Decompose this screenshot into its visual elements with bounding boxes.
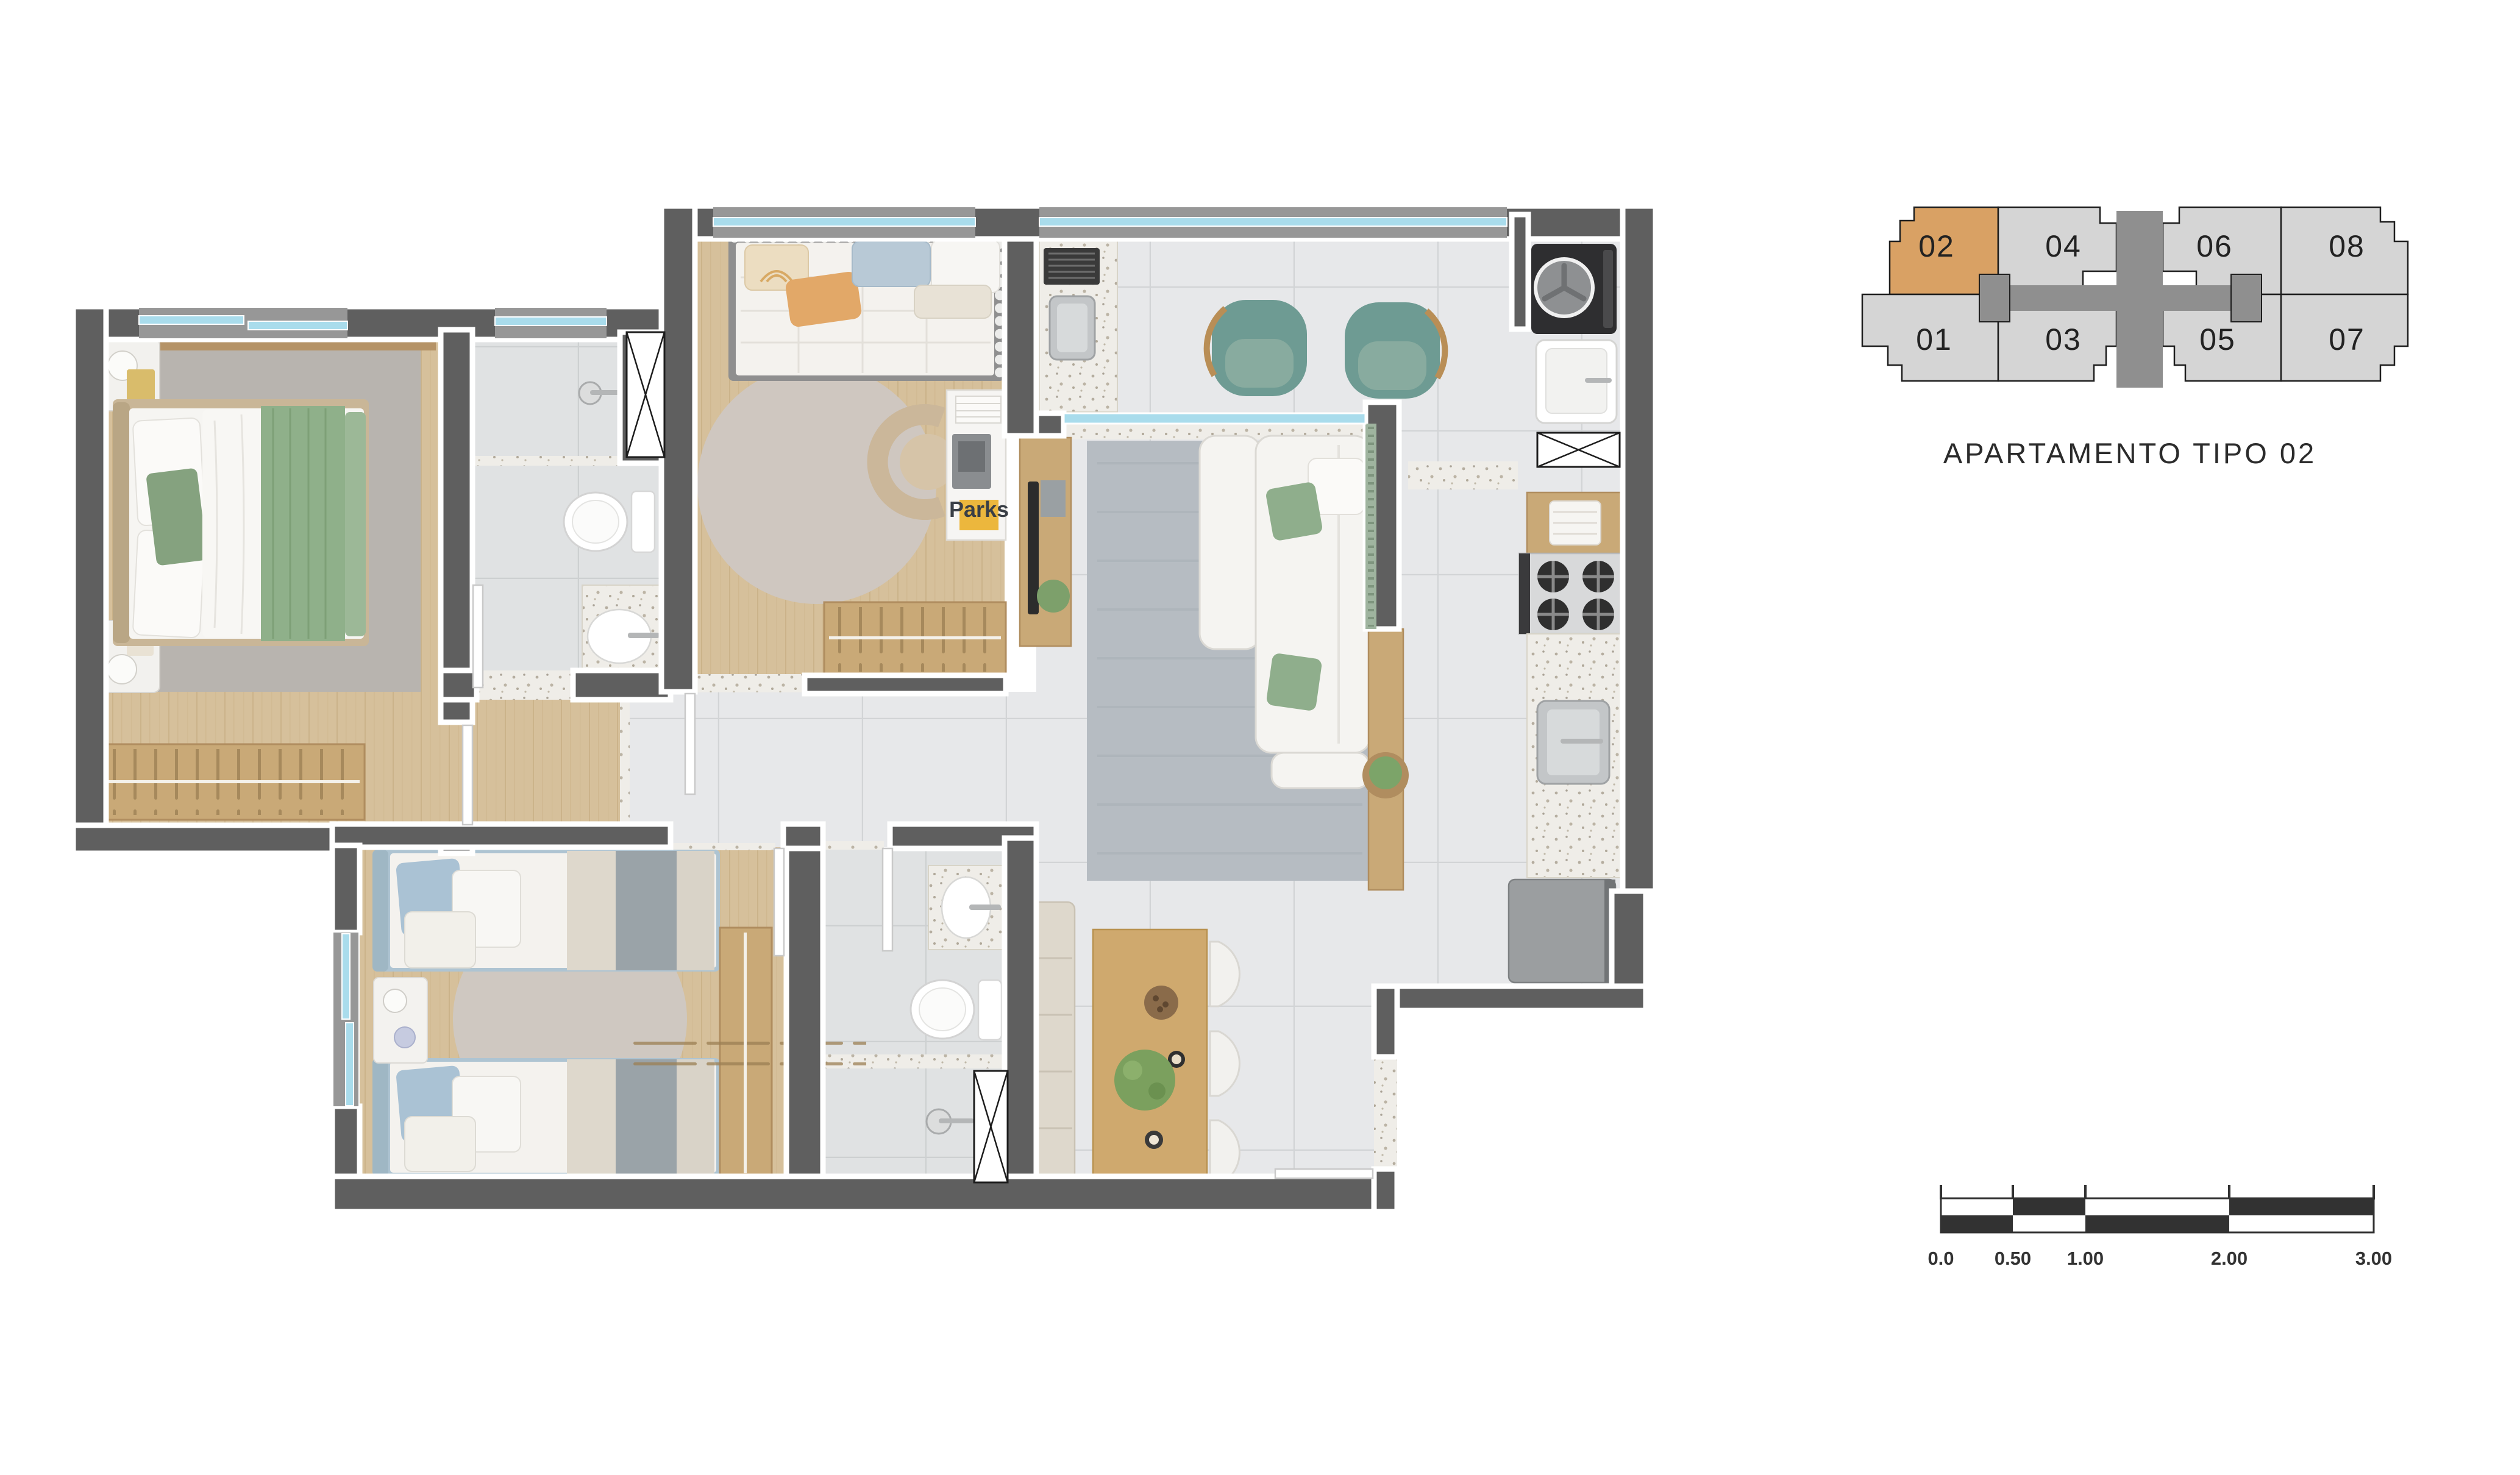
blanket-band bbox=[616, 1059, 677, 1175]
wall-bath2-right bbox=[1005, 838, 1036, 1176]
wall-master-bottom bbox=[73, 825, 336, 853]
basin-faucet bbox=[969, 905, 1001, 910]
pillow bbox=[405, 1117, 475, 1171]
wall-left bbox=[73, 307, 106, 853]
bathroom2-threshold bbox=[823, 841, 884, 850]
plant-icon bbox=[1369, 756, 1402, 789]
bathroom1-window-glass bbox=[495, 317, 607, 325]
plant-centerpiece bbox=[1114, 1050, 1175, 1111]
bedroom3-threshold bbox=[671, 843, 775, 850]
wall-bedroom3-top bbox=[332, 824, 671, 847]
bedroom3-door-leaf bbox=[774, 848, 784, 956]
laundry-area bbox=[1531, 244, 1617, 423]
duct-shaft bbox=[974, 1071, 1008, 1182]
wall-bedroom3-bath2-divider bbox=[786, 848, 823, 1176]
twin-bed-headboard bbox=[372, 1058, 388, 1176]
plant-icon bbox=[1037, 580, 1070, 613]
sofa-chaise bbox=[1200, 436, 1261, 649]
wall-master-bath-divider bbox=[441, 330, 472, 722]
orange-pillow bbox=[785, 271, 863, 328]
book-stack bbox=[956, 396, 1001, 423]
page-title: APARTAMENTO TIPO 02 bbox=[1943, 437, 2316, 469]
bathroom1-door-leaf bbox=[473, 585, 483, 688]
sink-faucet bbox=[1561, 739, 1603, 744]
scale-label-300: 3.00 bbox=[2355, 1248, 2392, 1269]
clock-icon bbox=[394, 1027, 415, 1048]
wardrobe-rail bbox=[107, 780, 360, 783]
scale-ticks bbox=[1941, 1185, 2374, 1200]
keyplan-unit-02-label: 02 bbox=[1918, 229, 1955, 263]
dining-chairs bbox=[1210, 942, 1239, 1185]
wall-glass-jamb bbox=[1036, 413, 1064, 436]
scale-bar: 0.0 0.50 1.00 2.00 3.00 bbox=[1927, 1185, 2392, 1269]
wall-door-stub bbox=[783, 824, 823, 848]
scale-checker bbox=[1941, 1198, 2374, 1232]
cloud-pillow bbox=[852, 241, 930, 286]
twin-bed bbox=[372, 1058, 720, 1176]
bedroom2-threshold bbox=[695, 674, 805, 692]
toilet-seat bbox=[572, 500, 619, 543]
keyplan-unit-05-label: 05 bbox=[2199, 322, 2236, 357]
media-box bbox=[1041, 480, 1066, 517]
twin-bed bbox=[372, 850, 720, 972]
keyplan-unit-06-label: 06 bbox=[2196, 229, 2233, 263]
scale-label-050: 0.50 bbox=[1995, 1248, 2031, 1269]
laptop-keys bbox=[958, 441, 985, 472]
wall-bedroom3-left-lower bbox=[332, 1106, 360, 1182]
scale-label-0: 0.0 bbox=[1927, 1248, 1954, 1269]
wall-bottom bbox=[332, 1176, 1397, 1212]
wall-bedroom2-left bbox=[661, 206, 695, 692]
pillow bbox=[405, 912, 475, 968]
scale-label-100: 1.00 bbox=[2067, 1248, 2104, 1269]
bathroom2-door-leaf bbox=[883, 848, 892, 951]
master-window-glass bbox=[248, 321, 347, 330]
wall-kitchen-bottom bbox=[1376, 986, 1646, 1011]
teal-armchair bbox=[1207, 300, 1307, 396]
sofa-foot-cushion bbox=[1272, 753, 1369, 788]
cooktop-front bbox=[1519, 553, 1530, 634]
blanket-band bbox=[677, 1059, 714, 1175]
wall-bedroom2-bottom bbox=[805, 675, 1006, 694]
scale-label-200: 2.00 bbox=[2211, 1248, 2248, 1269]
bedroom2-window-glass bbox=[713, 218, 975, 226]
twin-bed-headboard bbox=[372, 850, 388, 972]
green-pillow bbox=[1265, 653, 1322, 712]
wardrobe-rail bbox=[744, 933, 747, 1173]
double-bed-headboard bbox=[113, 402, 130, 643]
armchair-cushion bbox=[1225, 339, 1294, 388]
desk-brand-label: Parks bbox=[949, 497, 1009, 522]
entry-door-leaf bbox=[1275, 1169, 1373, 1178]
green-pillow bbox=[1265, 482, 1323, 542]
wall-bedroom2-right bbox=[1005, 239, 1036, 436]
wall-entry-corner bbox=[1374, 1169, 1397, 1212]
duct-shaft bbox=[1537, 433, 1620, 467]
wall-entry-stub bbox=[1374, 986, 1397, 1057]
wall-right-upper bbox=[1623, 206, 1656, 891]
keyplan-corridor bbox=[1979, 285, 2257, 311]
keyplan-unit-08-label: 08 bbox=[2329, 229, 2365, 263]
master-window-glass bbox=[139, 316, 244, 324]
round-rug bbox=[697, 365, 936, 604]
keyplan-unit-07-label: 07 bbox=[2329, 322, 2365, 357]
tub-faucet bbox=[1585, 378, 1612, 383]
table-lamp-icon bbox=[383, 989, 407, 1012]
shower-arm bbox=[590, 390, 622, 395]
balcony-glass bbox=[1039, 218, 1507, 226]
blanket-drape bbox=[345, 412, 366, 636]
living-balcony-glass bbox=[1064, 413, 1365, 424]
keyplan-unit-04-label: 04 bbox=[2045, 229, 2082, 263]
blanket-band bbox=[567, 1059, 616, 1175]
bathroom1-threshold bbox=[477, 670, 573, 700]
bedroom2-door-leaf bbox=[685, 694, 695, 794]
blanket-band bbox=[616, 851, 677, 970]
keyplan-unit-01-label: 01 bbox=[1916, 322, 1952, 357]
teal-armchair bbox=[1345, 302, 1445, 399]
shower-arm bbox=[939, 1118, 974, 1123]
keyplan-unit-03-label: 03 bbox=[2045, 322, 2082, 357]
fruit-bowl bbox=[1144, 986, 1178, 1020]
blanket-band bbox=[567, 851, 616, 970]
basin-faucet bbox=[628, 633, 660, 638]
kitchen-passage-threshold bbox=[1408, 461, 1518, 489]
wall-bath1-bottom-left bbox=[441, 670, 477, 700]
master-door-leaf bbox=[463, 725, 472, 825]
entry-threshold bbox=[1374, 1057, 1397, 1176]
balcony-sink-basin bbox=[1057, 304, 1087, 352]
bedroom3-window-glass bbox=[342, 934, 350, 1019]
blanket-band bbox=[677, 851, 714, 970]
bathroom1-accent-strip bbox=[471, 456, 620, 466]
table-lamp-icon bbox=[107, 655, 137, 684]
apartment-floor-plan-sheet: Parks bbox=[0, 0, 2520, 1475]
toilet-cistern bbox=[632, 491, 655, 552]
keyplan: 02 04 06 08 01 03 05 07 bbox=[1862, 207, 2408, 388]
toilet-seat bbox=[919, 988, 966, 1031]
wall-laundry-divider bbox=[1512, 215, 1528, 329]
gold-tray bbox=[127, 369, 155, 403]
keyplan-corridor-node bbox=[1979, 274, 2010, 322]
slat-panel bbox=[1365, 424, 1376, 629]
wardrobe-rail bbox=[829, 636, 1001, 639]
washer-controls bbox=[1603, 250, 1613, 328]
tv-console bbox=[1020, 438, 1071, 646]
armchair-cushion bbox=[1358, 341, 1426, 390]
bedroom3-window-glass bbox=[346, 1023, 354, 1106]
keyplan-corridor-node bbox=[2231, 274, 2262, 322]
duct-shaft bbox=[627, 332, 664, 457]
wall-bedroom3-left-upper bbox=[332, 845, 360, 933]
refrigerator bbox=[1509, 880, 1615, 983]
toilet-cistern bbox=[978, 980, 1002, 1040]
lumbar-pillow bbox=[914, 285, 991, 318]
wall-bath1-bottom-right bbox=[573, 670, 671, 700]
